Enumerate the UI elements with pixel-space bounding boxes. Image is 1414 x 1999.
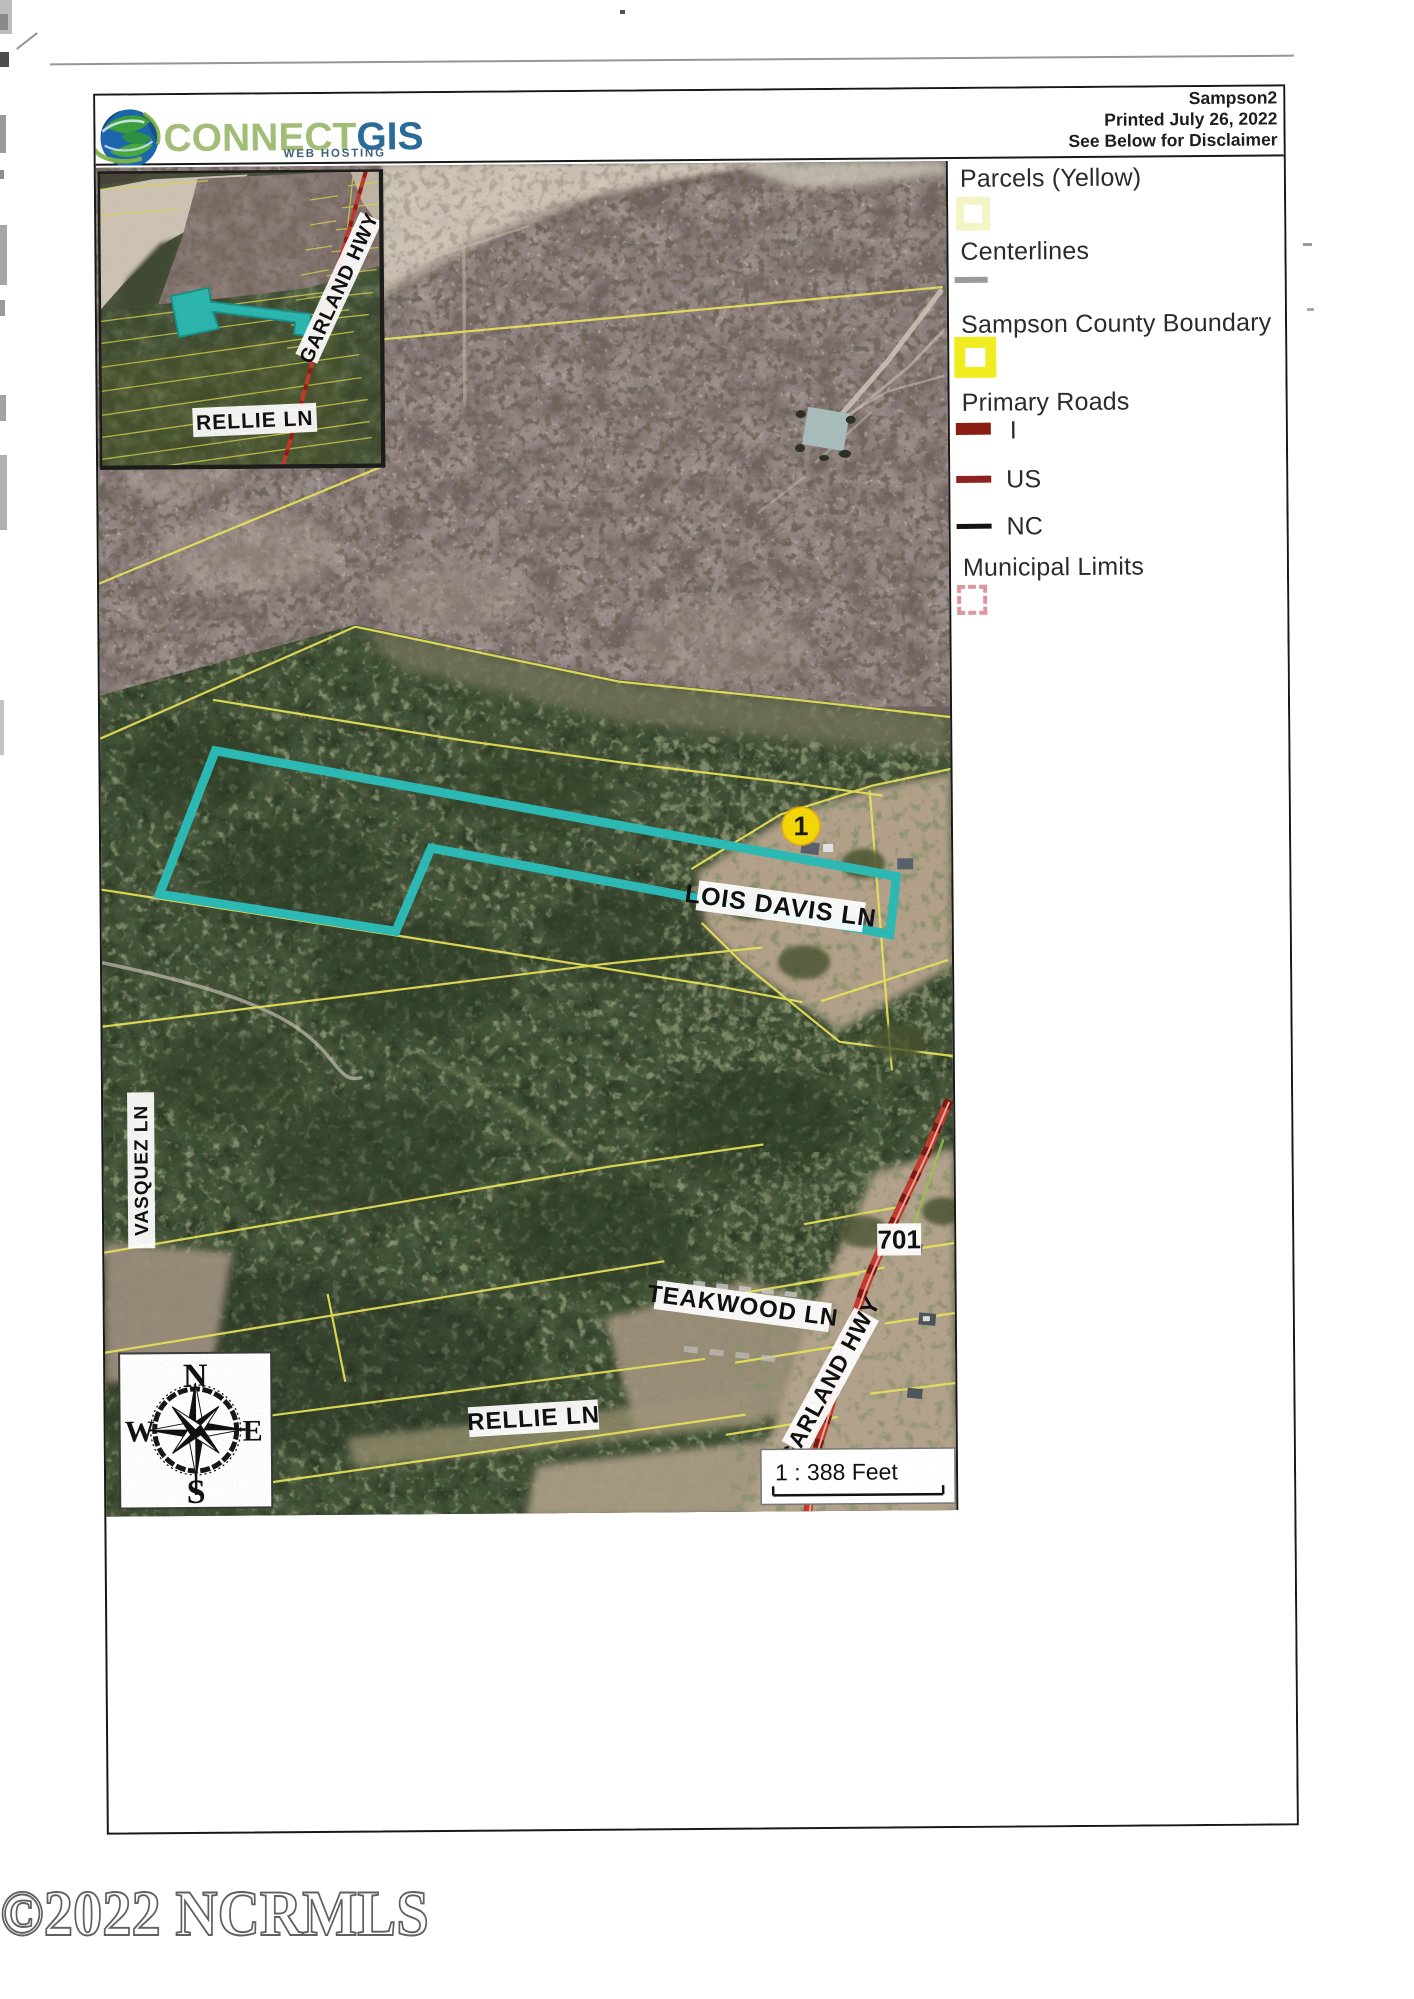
- svg-text:WEB HOSTING: WEB HOSTING: [284, 147, 386, 160]
